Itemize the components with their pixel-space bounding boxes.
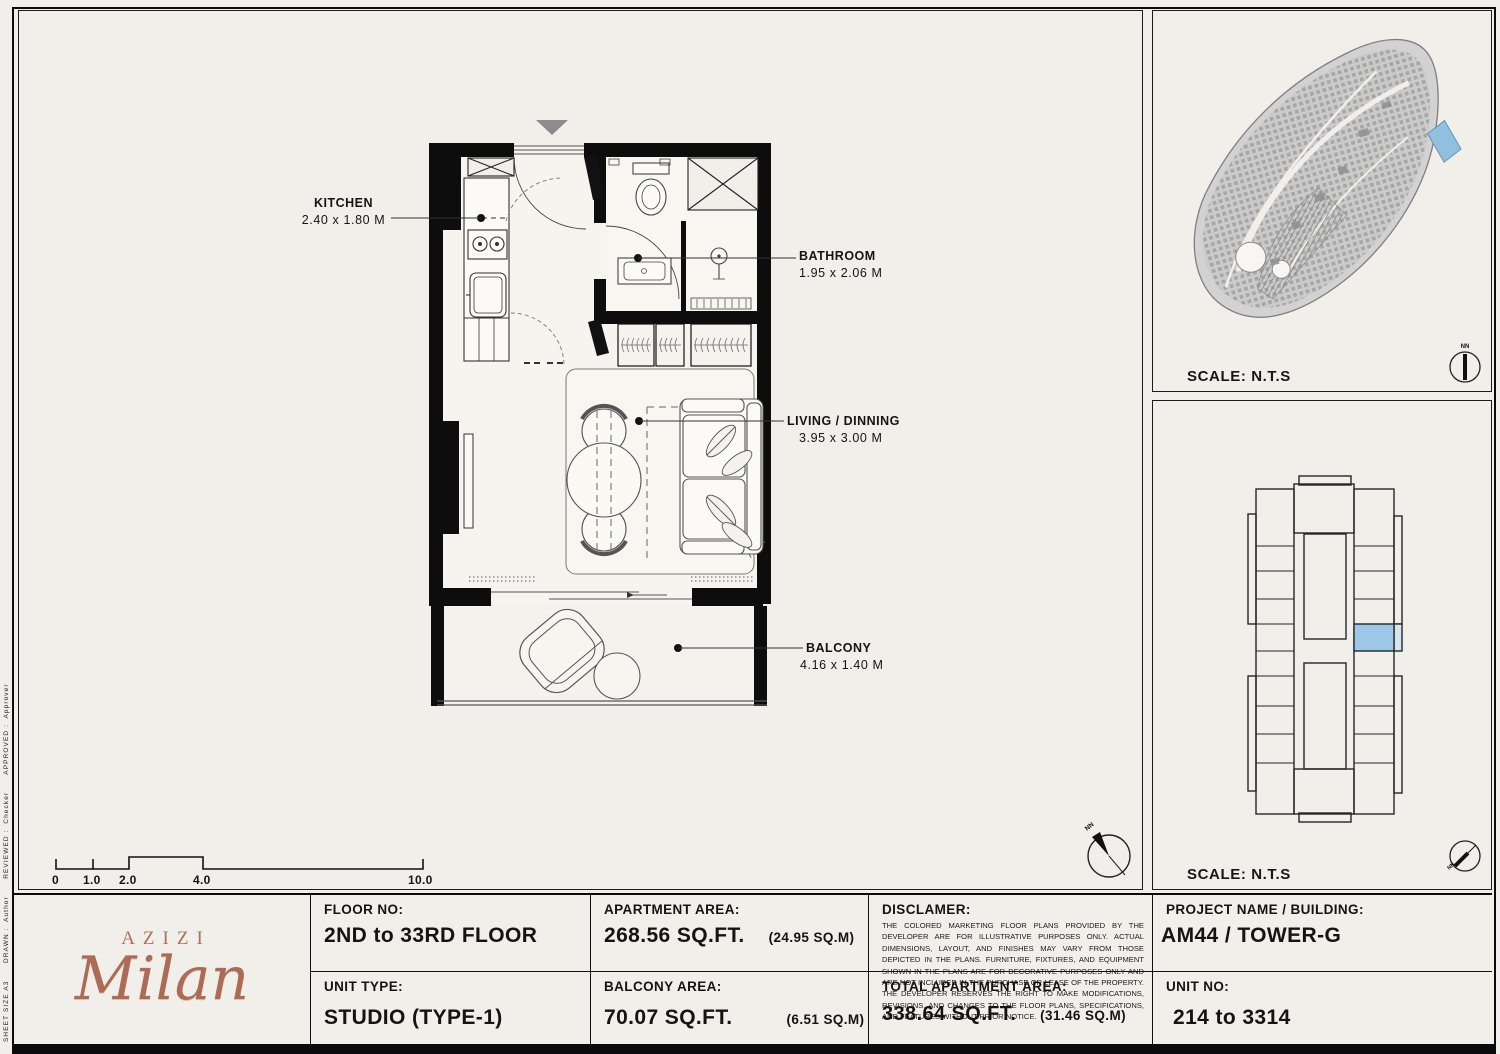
apartment-area-field: APARTMENT AREA: 268.56 SQ.FT. (24.95 SQ.…: [591, 895, 868, 971]
project-field: PROJECT NAME / BUILDING: AM44 / TOWER-G: [1153, 895, 1492, 971]
north-compass: NN: [1084, 821, 1130, 877]
key-plan-highlighted-unit: [1354, 624, 1394, 651]
north-label: NN: [1461, 344, 1470, 350]
key-compass: NN: [1446, 841, 1480, 872]
scale-tick: 2.0: [119, 873, 137, 887]
scale-tick: 1.0: [83, 873, 101, 887]
unit-no-label: UNIT NO:: [1166, 979, 1482, 994]
scale-tick: 10.0: [408, 873, 433, 887]
tv-console: [464, 434, 473, 528]
unit-type-field: UNIT TYPE: STUDIO (TYPE-1): [311, 971, 590, 1046]
title-block: AZIZI Milan FLOOR NO: 2ND to 33RD FLOOR …: [14, 893, 1492, 1044]
sheet-side-note: SHEET SIZE A3 DRAWN : Author REVIEWED : …: [3, 7, 10, 1042]
unit-type-label: UNIT TYPE:: [324, 979, 580, 994]
cell-floor-unit: FLOOR NO: 2ND to 33RD FLOOR UNIT TYPE: S…: [310, 895, 590, 1046]
project-value: AM44 / TOWER-G: [1161, 924, 1482, 948]
callout-balcony: BALCONY 4.16 x 1.40 M: [806, 641, 906, 672]
room-dims: 1.95 x 2.06 M: [799, 266, 904, 280]
key-plan-drawing: NN: [1153, 401, 1490, 888]
entry-arrow: [536, 120, 568, 135]
room-label: BATHROOM: [799, 249, 904, 263]
callout-living: LIVING / DINNING 3.95 x 3.00 M: [787, 414, 907, 445]
disclaimer-label: DISCLAMER:: [882, 902, 1144, 917]
floor-no-value: 2ND to 33RD FLOOR: [324, 924, 580, 948]
balcony-area-label: BALCONY AREA:: [604, 979, 858, 994]
site-plan-drawing: NN: [1153, 11, 1490, 390]
cell-areas: APARTMENT AREA: 268.56 SQ.FT. (24.95 SQ.…: [590, 895, 868, 1046]
living-dining-furniture: [566, 369, 765, 574]
room-label: BALCONY: [806, 641, 906, 655]
total-area-value: 338.64 SQ.FT.: [882, 1003, 1016, 1026]
room-dims: 2.40 x 1.80 M: [296, 213, 391, 227]
drawing-sheet: SHEET SIZE A3 DRAWN : Author REVIEWED : …: [0, 0, 1500, 1054]
apartment-area-metric: (24.95 SQ.M): [769, 930, 855, 945]
balcony-area-value: 70.07 SQ.FT.: [604, 1006, 733, 1030]
total-area-field: TOTAL APARTMENT AREA: 338.64 SQ.FT. (31.…: [869, 971, 1152, 1046]
apartment-area-label: APARTMENT AREA:: [604, 902, 858, 917]
master-plan-crescent: [1153, 28, 1490, 334]
cell-project-unit: PROJECT NAME / BUILDING: AM44 / TOWER-G …: [1152, 895, 1492, 1046]
north-label: NN: [1446, 862, 1456, 872]
unit-no-field: UNIT NO: 214 to 3314: [1153, 971, 1492, 1046]
total-area-label: TOTAL APARTMENT AREA:: [882, 979, 1142, 994]
balcony-area-field: BALCONY AREA: 70.07 SQ.FT. (6.51 SQ.M): [591, 971, 868, 1046]
key-scale-label: SCALE: N.T.S: [1187, 866, 1291, 883]
callout-bathroom: BATHROOM 1.95 x 2.06 M: [799, 249, 904, 280]
scale-bar: [56, 857, 423, 869]
scale-tick: 0: [52, 873, 59, 887]
site-compass: NN: [1450, 344, 1480, 382]
site-scale-label: SCALE: N.T.S: [1187, 368, 1291, 385]
cell-disclaimer-total: DISCLAMER: THE COLORED MARKETING FLOOR P…: [868, 895, 1152, 1046]
floor-no-field: FLOOR NO: 2ND to 33RD FLOOR: [311, 895, 590, 971]
north-label: NN: [1084, 821, 1096, 833]
shaft-top-right: [688, 158, 758, 210]
room-label: LIVING / DINNING: [787, 414, 907, 428]
room-dims: 4.16 x 1.40 M: [800, 658, 906, 672]
site-plan-panel: NN SCALE: N.T.S: [1152, 10, 1492, 392]
project-label: PROJECT NAME / BUILDING:: [1166, 902, 1482, 917]
tower-footprint: [1248, 476, 1402, 822]
logo-project-text: Milan: [75, 944, 249, 1014]
key-plan-panel: NN SCALE: N.T.S: [1152, 400, 1492, 890]
room-dims: 3.95 x 3.00 M: [787, 431, 907, 445]
unit-type-value: STUDIO (TYPE-1): [324, 1006, 580, 1030]
scale-tick: 4.0: [193, 873, 211, 887]
apartment-area-value: 268.56 SQ.FT.: [604, 924, 745, 948]
balcony-area-metric: (6.51 SQ.M): [787, 1012, 865, 1027]
callout-kitchen: KITCHEN 2.40 x 1.80 M: [296, 196, 391, 227]
unit-no-value: 214 to 3314: [1166, 1006, 1482, 1030]
shaft-top-left: [468, 158, 514, 176]
floor-no-label: FLOOR NO:: [324, 902, 580, 917]
floor-plan-panel: NN KITCHEN 2.40 x 1.80 M BATHROOM 1.95 x…: [18, 10, 1143, 890]
floor-plan-drawing: NN: [19, 11, 1141, 888]
disclaimer-field: DISCLAMER: THE COLORED MARKETING FLOOR P…: [869, 895, 1152, 971]
brand-logo: AZIZI Milan: [14, 895, 310, 1046]
total-area-metric: (31.46 SQ.M): [1040, 1008, 1126, 1023]
room-label: KITCHEN: [296, 196, 391, 210]
